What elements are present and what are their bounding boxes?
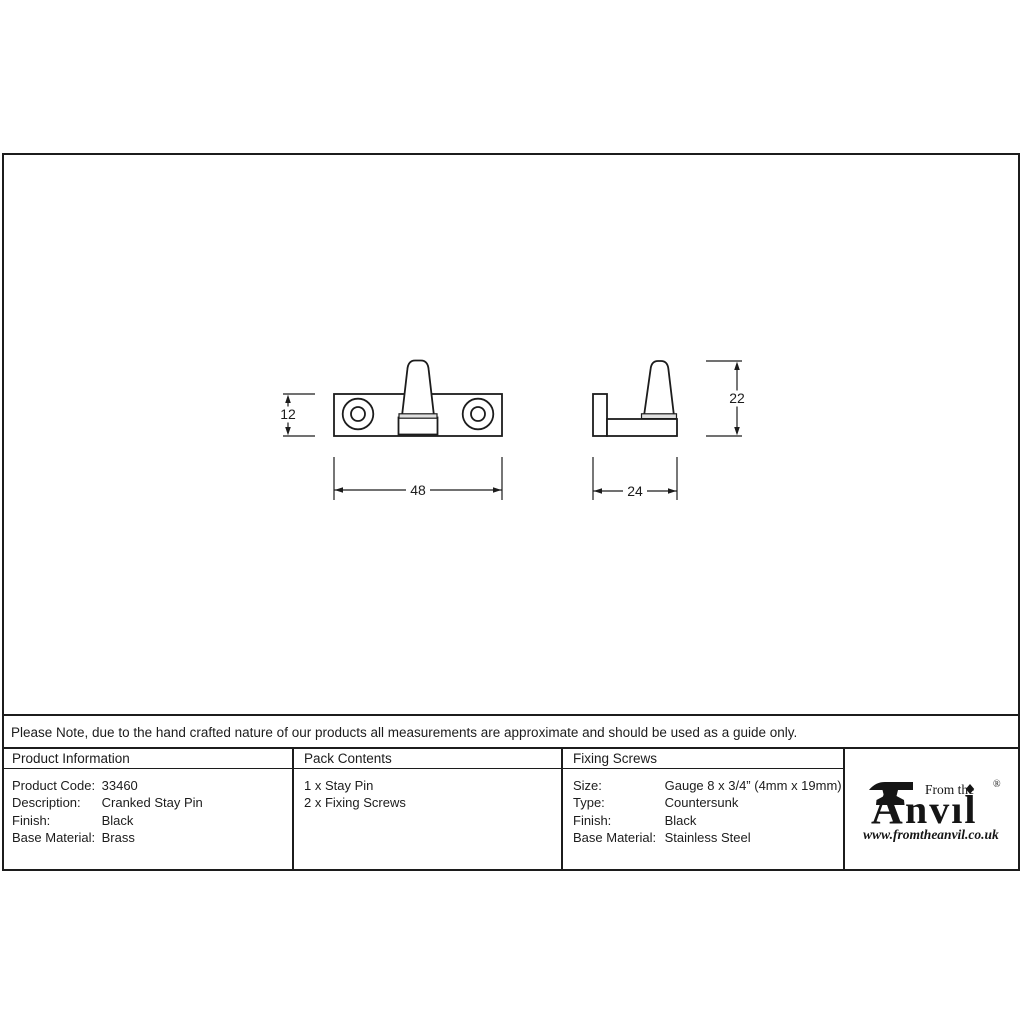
row-value: 33460 — [102, 778, 138, 793]
side-pin — [644, 361, 674, 416]
front-pin-foot — [399, 414, 437, 418]
pack-contents-item: 1 x Stay Pin — [304, 777, 561, 794]
row-label: Finish: — [573, 812, 661, 829]
row-label: Size: — [573, 777, 661, 794]
row-value: Gauge 8 x 3/4” (4mm x 19mm) — [665, 778, 842, 793]
front-screw-hole-right-inner — [471, 407, 485, 421]
side-width-dimension-label: 24 — [627, 483, 643, 499]
brand-logo-cell: A nvıl From the ® www.fromtheanvil.co.uk — [843, 749, 1020, 871]
row-label: Finish: — [12, 812, 98, 829]
row-label: Base Material: — [573, 829, 661, 846]
table-row: Base Material: Brass — [12, 829, 292, 846]
spec-table: Product Information Product Code: 33460 … — [2, 747, 1020, 871]
arrow-right-icon — [668, 488, 676, 494]
table-row: Product Code: 33460 — [12, 777, 292, 794]
registered-trademark-icon: ® — [993, 779, 1001, 790]
front-pin — [402, 361, 434, 417]
row-value: Black — [665, 813, 697, 828]
pack-contents-item: 2 x Fixing Screws — [304, 794, 561, 811]
table-row: Finish: Black — [573, 812, 843, 829]
fixing-screws-body: Size: Gauge 8 x 3/4” (4mm x 19mm) Type: … — [563, 769, 843, 847]
row-label: Base Material: — [12, 829, 98, 846]
arrow-down-icon — [285, 427, 291, 435]
product-information-body: Product Code: 33460 Description: Cranked… — [2, 769, 292, 847]
logo-url-text: www.fromtheanvil.co.uk — [863, 827, 999, 842]
pack-contents-header: Pack Contents — [294, 749, 561, 769]
row-label: Description: — [12, 794, 98, 811]
side-width-dimension: 24 — [593, 457, 677, 500]
pack-contents-column: Pack Contents 1 x Stay Pin 2 x Fixing Sc… — [292, 749, 561, 871]
pack-contents-body: 1 x Stay Pin 2 x Fixing Screws — [294, 769, 561, 812]
fixing-screws-header: Fixing Screws — [563, 749, 843, 769]
measurement-note-bar: Please Note, due to the hand crafted nat… — [2, 714, 1020, 749]
row-value: Brass — [102, 830, 135, 845]
row-label: Type: — [573, 794, 661, 811]
table-row: Finish: Black — [12, 812, 292, 829]
table-row: Size: Gauge 8 x 3/4” (4mm x 19mm) — [573, 777, 843, 794]
from-the-anvil-logo: A nvıl From the ® www.fromtheanvil.co.uk — [845, 749, 1020, 871]
table-row: Type: Countersunk — [573, 794, 843, 811]
product-information-header: Product Information — [2, 749, 292, 769]
row-value: Cranked Stay Pin — [102, 795, 203, 810]
row-value: Countersunk — [665, 795, 739, 810]
table-row: Description: Cranked Stay Pin — [12, 794, 292, 811]
side-height-dimension-label: 22 — [729, 390, 745, 406]
front-height-dimension: 12 — [279, 394, 316, 436]
arrow-left-icon — [594, 488, 602, 494]
row-value: Black — [102, 813, 134, 828]
table-row: Base Material: Stainless Steel — [573, 829, 843, 846]
side-pin-foot — [642, 414, 677, 419]
front-pin-base-block — [399, 418, 438, 435]
product-information-column: Product Information Product Code: 33460 … — [2, 749, 292, 871]
measurement-note-text: Please Note, due to the hand crafted nat… — [11, 725, 797, 740]
arrow-right-icon — [493, 487, 501, 493]
fixing-screws-column: Fixing Screws Size: Gauge 8 x 3/4” (4mm … — [561, 749, 843, 871]
arrow-left-icon — [335, 487, 343, 493]
side-base-plate — [607, 419, 677, 436]
front-screw-hole-left-inner — [351, 407, 365, 421]
front-width-dimension: 48 — [334, 457, 502, 500]
row-label: Product Code: — [12, 777, 98, 794]
product-datasheet: 12 48 22 — [0, 0, 1024, 1024]
arrow-up-icon — [285, 395, 291, 403]
side-cranked-leg — [593, 394, 607, 436]
front-width-dimension-label: 48 — [410, 482, 426, 498]
arrow-down-icon — [734, 427, 740, 435]
arrow-up-icon — [734, 362, 740, 370]
side-height-dimension: 22 — [706, 361, 747, 436]
anvil-logo-graphic: A nvıl From the ® www.fromtheanvil.co.uk — [845, 749, 1020, 871]
front-view-drawing — [334, 361, 502, 437]
front-height-dimension-label: 12 — [280, 406, 296, 422]
side-view-drawing — [593, 361, 677, 436]
row-value: Stainless Steel — [665, 830, 751, 845]
